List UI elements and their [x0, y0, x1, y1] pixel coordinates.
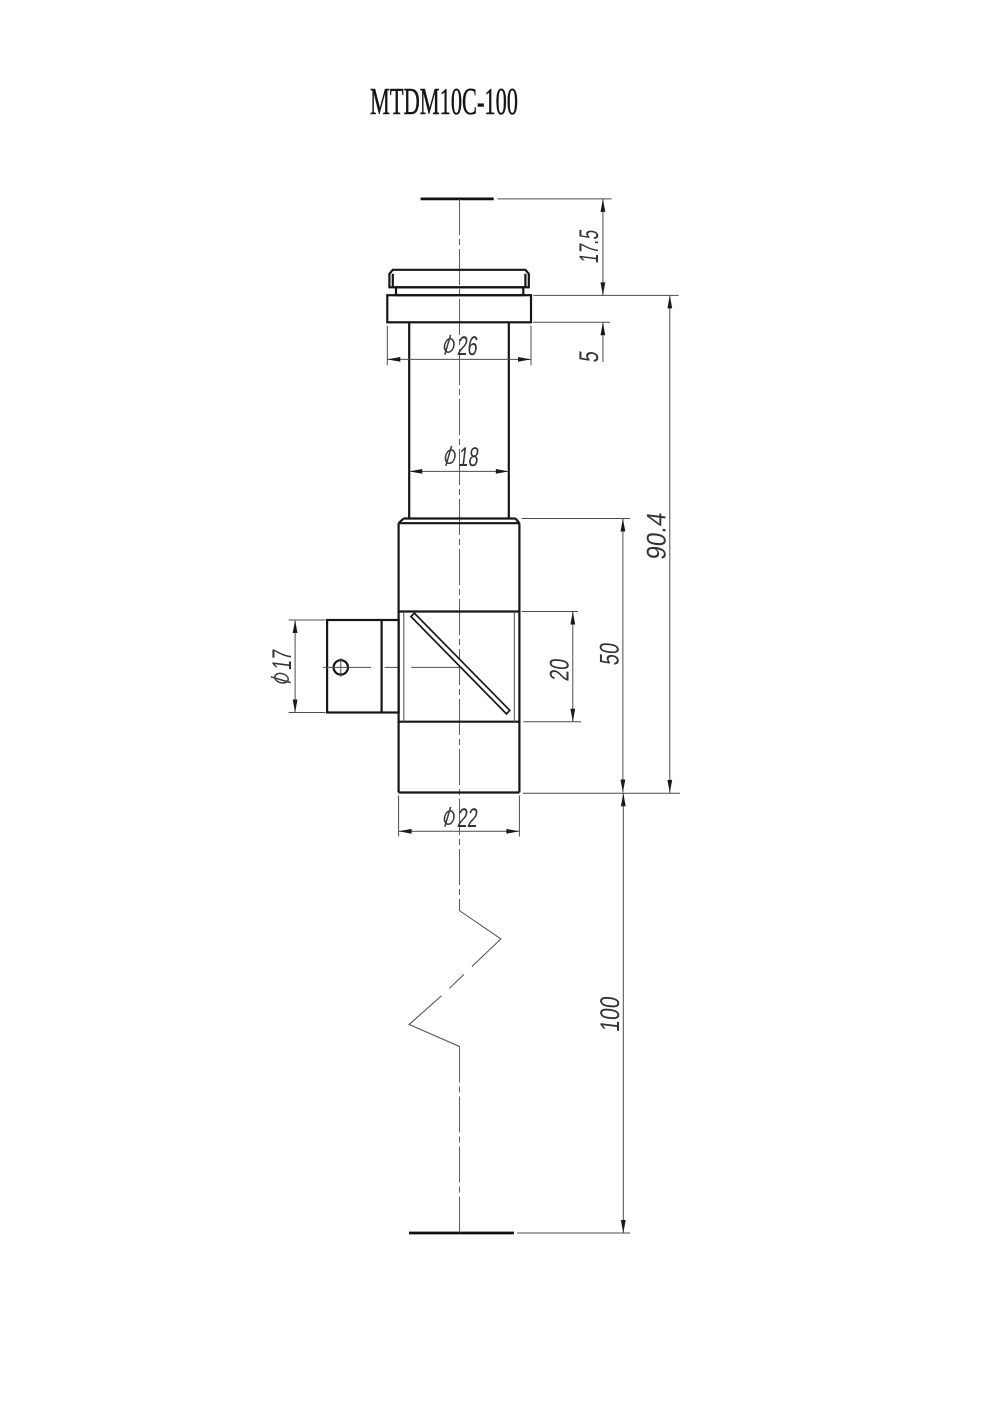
- svg-text:17: 17: [266, 648, 297, 672]
- svg-text:20: 20: [544, 657, 575, 683]
- svg-text:MTDM10C-100: MTDM10C-100: [370, 81, 518, 123]
- svg-text:100: 100: [594, 994, 625, 1033]
- svg-text:50: 50: [594, 641, 625, 667]
- svg-text:18: 18: [457, 441, 481, 472]
- svg-text:17.5: 17.5: [573, 228, 604, 265]
- svg-text:26: 26: [456, 330, 480, 361]
- svg-text:90.4: 90.4: [641, 510, 672, 561]
- svg-text:22: 22: [456, 802, 480, 833]
